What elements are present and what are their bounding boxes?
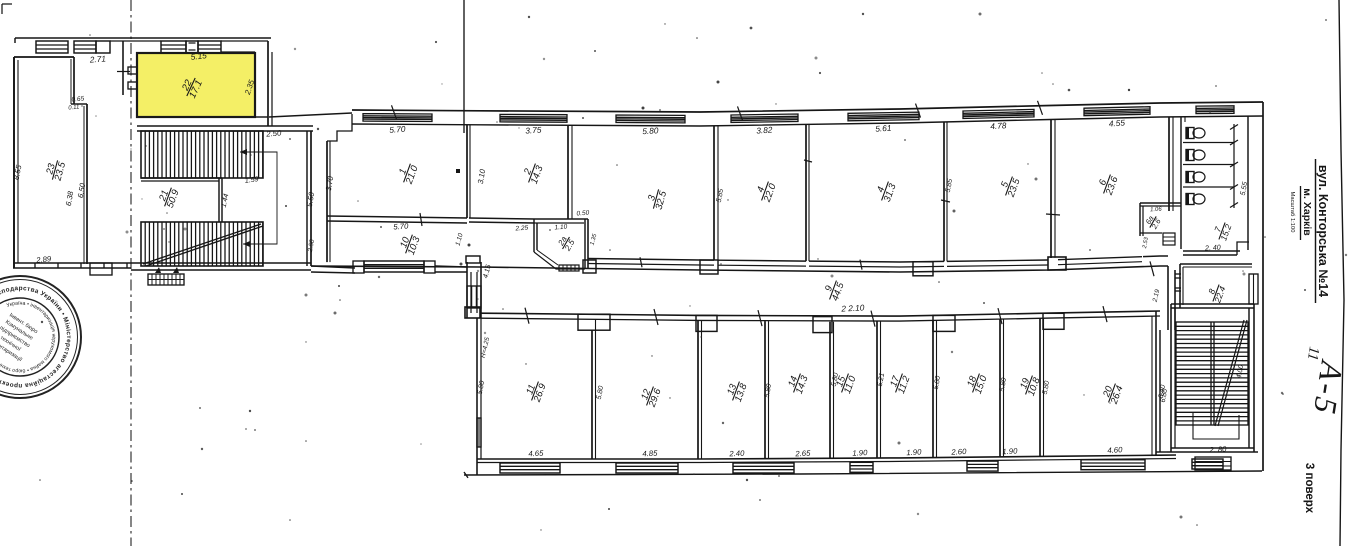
svg-text:3.82: 3.82 [756,124,773,135]
svg-text:вул. Конторська №14: вул. Конторська №14 [1316,165,1330,297]
svg-text:2.71: 2.71 [88,53,106,64]
svg-text:4.85: 4.85 [642,449,658,459]
svg-text:4.60: 4.60 [1107,445,1123,455]
svg-text:0.11: 0.11 [68,104,80,111]
svg-text:3 поверх: 3 поверх [1303,463,1315,514]
svg-text:5.80: 5.80 [642,125,659,136]
svg-text:2.60: 2.60 [950,447,967,457]
svg-text:2 2.10: 2 2.10 [840,302,865,313]
svg-text:4.65: 4.65 [528,449,544,459]
svg-text:0.65: 0.65 [71,95,85,103]
svg-text:2.40: 2.40 [728,449,745,459]
svg-text:5.70: 5.70 [389,124,406,135]
svg-text:2.25: 2.25 [514,225,528,233]
svg-text:0.50: 0.50 [576,210,589,218]
svg-text:Масштаб 1:100: Масштаб 1:100 [1289,192,1295,233]
svg-text:2.50: 2.50 [265,128,282,138]
svg-text:1.10: 1.10 [554,224,567,232]
svg-text:5.15: 5.15 [190,50,207,62]
svg-text:1.90: 1.90 [906,447,922,457]
svg-text:4.55: 4.55 [1108,117,1125,128]
svg-text:1.90: 1.90 [1002,446,1018,456]
svg-text:1.06: 1.06 [1150,207,1163,214]
svg-text:3.75: 3.75 [525,125,542,136]
svg-text:4.78: 4.78 [990,120,1007,131]
svg-text:5.61: 5.61 [875,123,892,134]
svg-text:м. Харків: м. Харків [1301,188,1313,236]
svg-text:2.65: 2.65 [794,449,811,459]
svg-text:1.90: 1.90 [852,448,868,458]
svg-text:2. 80: 2. 80 [1208,445,1227,455]
svg-text:5.70: 5.70 [393,221,409,231]
